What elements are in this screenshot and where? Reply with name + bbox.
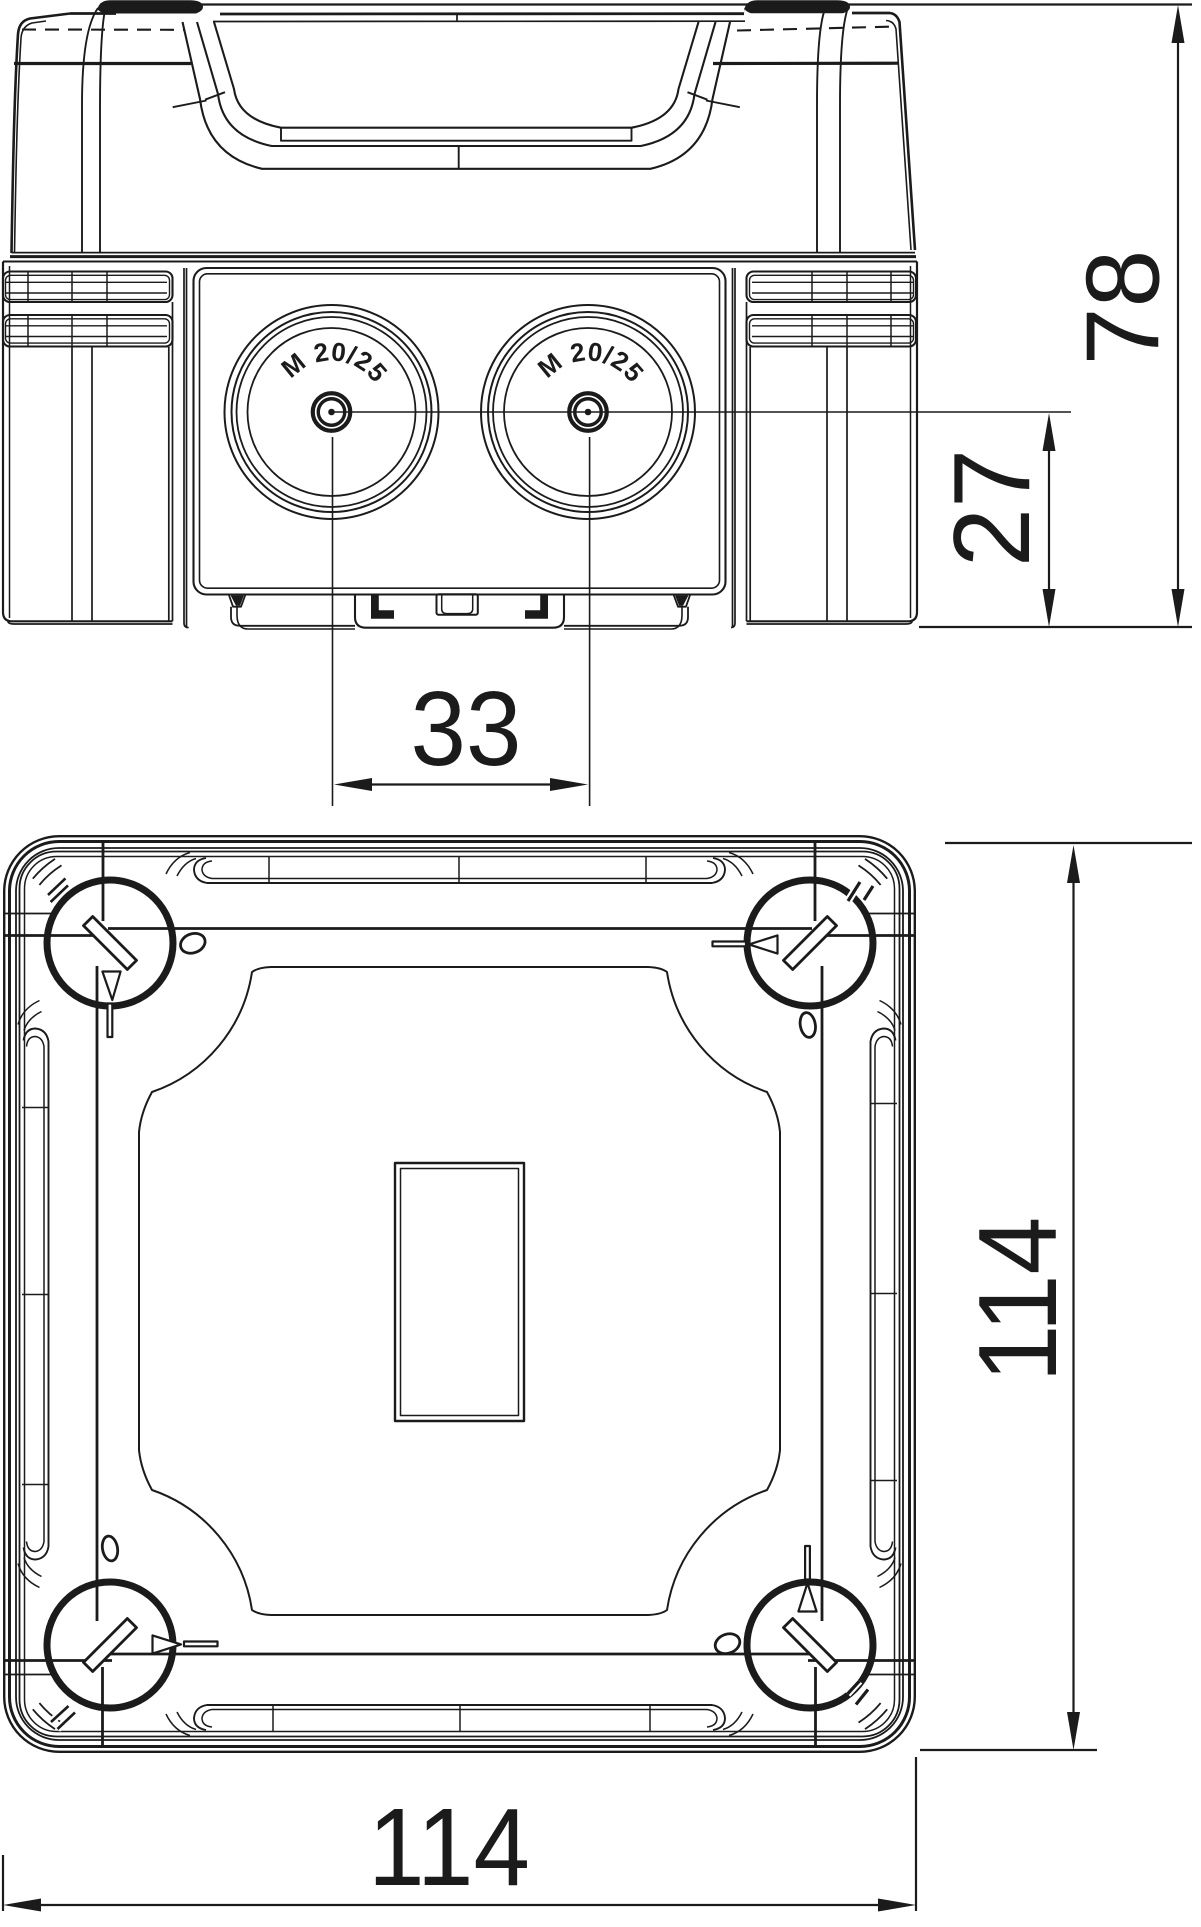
svg-text:27: 27 — [931, 449, 1052, 567]
svg-text:78: 78 — [1066, 250, 1182, 366]
svg-text:114: 114 — [368, 1786, 530, 1909]
svg-text:33: 33 — [411, 669, 522, 787]
svg-text:114: 114 — [955, 1217, 1080, 1383]
